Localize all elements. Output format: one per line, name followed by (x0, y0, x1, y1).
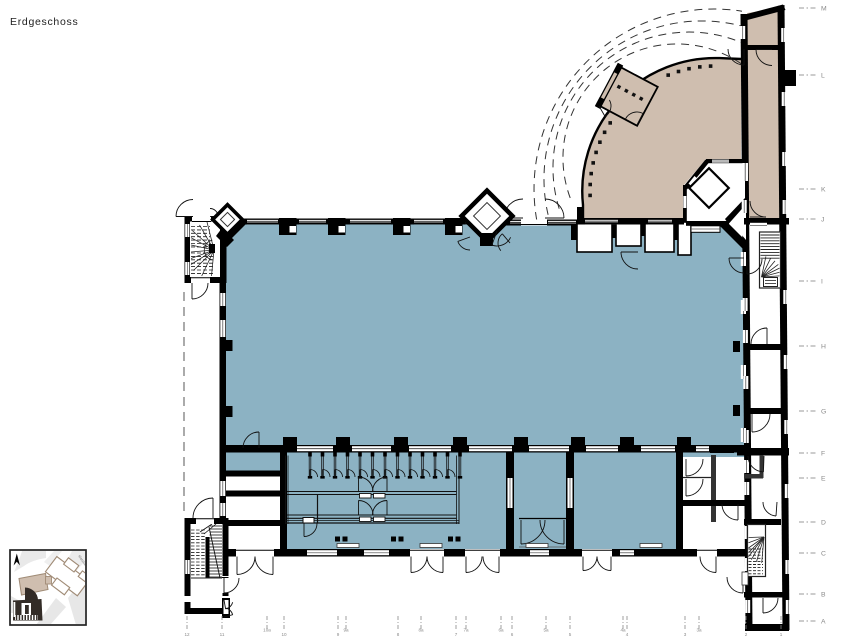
svg-text:10: 10 (281, 632, 287, 637)
svg-text:3: 3 (684, 632, 687, 637)
svg-text:K: K (821, 186, 826, 193)
svg-text:E: E (821, 475, 826, 482)
svg-text:12: 12 (184, 632, 190, 637)
svg-text:B: B (821, 591, 826, 598)
svg-text:A: A (821, 618, 826, 625)
svg-text:J: J (821, 216, 824, 223)
svg-text:11: 11 (220, 632, 225, 637)
svg-text:7: 7 (455, 632, 458, 637)
svg-text:9: 9 (337, 632, 340, 637)
svg-text:4: 4 (626, 632, 629, 637)
svg-text:Erdgeschoss: Erdgeschoss (10, 16, 78, 28)
svg-text:D: D (821, 519, 826, 526)
svg-text:L: L (821, 72, 825, 79)
svg-text:1: 1 (780, 632, 783, 637)
svg-text:I: I (821, 278, 823, 285)
svg-text:H: H (821, 343, 826, 350)
svg-text:5: 5 (569, 632, 572, 637)
svg-text:M: M (821, 5, 827, 12)
svg-text:8: 8 (397, 632, 400, 637)
svg-text:F: F (821, 450, 825, 457)
svg-text:2: 2 (745, 632, 748, 637)
svg-text:G: G (821, 408, 826, 415)
svg-text:6: 6 (511, 632, 514, 637)
svg-text:C: C (821, 550, 826, 557)
